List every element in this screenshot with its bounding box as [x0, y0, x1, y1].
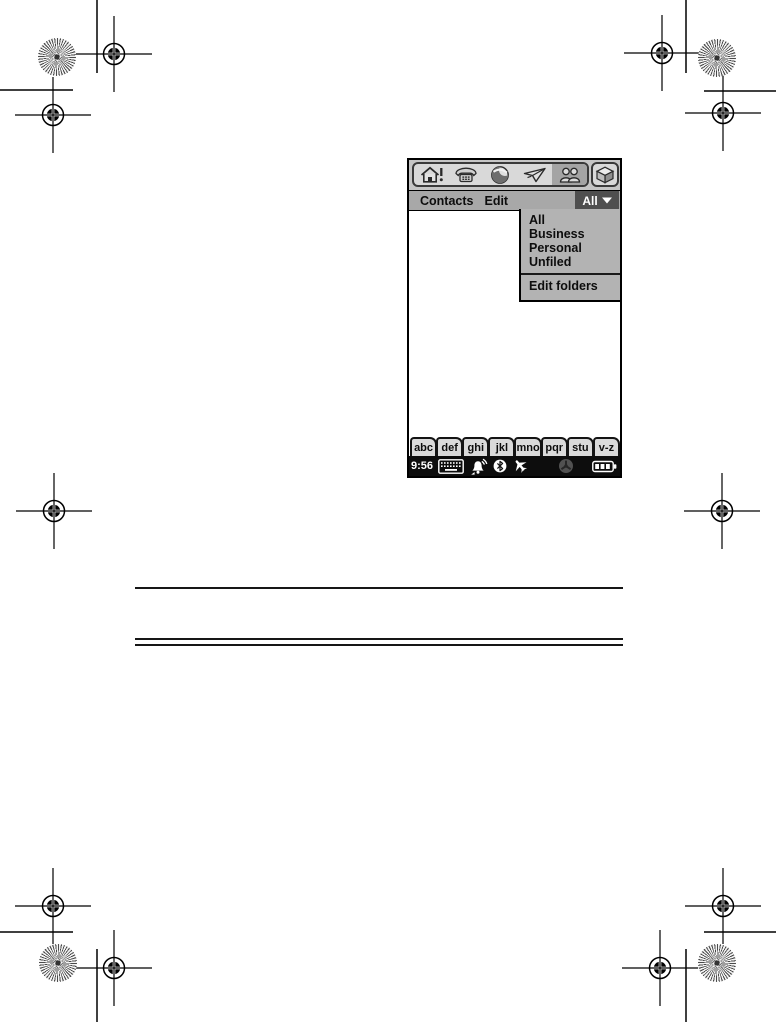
phone-icon: [453, 165, 479, 185]
chevron-down-icon: [602, 197, 612, 204]
phone-button[interactable]: [449, 164, 484, 185]
category-option-business[interactable]: Business: [529, 227, 620, 241]
web-button[interactable]: [483, 164, 518, 185]
note-rule-top: [135, 587, 623, 589]
bluetooth-icon: [493, 459, 507, 473]
home-alert-icon: [418, 165, 444, 185]
edit-folders-option[interactable]: Edit folders: [529, 278, 620, 294]
category-selector-label: All: [582, 194, 597, 208]
send-message-icon: [522, 165, 548, 185]
app-icon-group: [412, 162, 589, 187]
app-icon-bar: [409, 160, 620, 190]
starburst-mark: [698, 944, 736, 982]
menu-contacts[interactable]: Contacts: [420, 194, 473, 208]
tab-pqr[interactable]: pqr: [541, 437, 568, 456]
tab-mno[interactable]: mno: [514, 437, 541, 456]
clock-text: 9:56: [411, 460, 433, 472]
menu-edit[interactable]: Edit: [484, 194, 508, 208]
tab-jkl[interactable]: jkl: [488, 437, 515, 456]
category-dropdown: All Business Personal Unfiled Edit folde…: [519, 209, 620, 302]
keyboard-icon: [438, 459, 464, 474]
applications-button[interactable]: [591, 162, 619, 187]
status-bar: 9:56: [409, 456, 620, 476]
contact-list-area: All Business Personal Unfiled Edit folde…: [409, 211, 620, 435]
contacts-people-icon: [556, 165, 584, 185]
flight-mode-icon: [512, 458, 529, 474]
tab-vz[interactable]: v-z: [593, 437, 620, 456]
starburst-mark: [38, 38, 76, 76]
note-rule-bottom: [135, 638, 623, 646]
globe-icon: [489, 165, 511, 185]
starburst-mark: [39, 944, 77, 982]
tab-stu[interactable]: stu: [567, 437, 594, 456]
tab-def[interactable]: def: [436, 437, 463, 456]
sync-icon: [558, 458, 574, 474]
messaging-button[interactable]: [518, 164, 553, 185]
category-option-all[interactable]: All: [529, 213, 620, 227]
home-button[interactable]: [414, 164, 449, 185]
device-screenshot: Contacts Edit All All Business Personal …: [407, 158, 622, 478]
category-option-personal[interactable]: Personal: [529, 241, 620, 255]
alarm-bell-icon: [469, 458, 488, 475]
contacts-button[interactable]: [552, 164, 587, 185]
tab-abc[interactable]: abc: [410, 437, 437, 456]
battery-icon: [592, 460, 617, 473]
registration-marks: [0, 0, 776, 1022]
alphabet-tab-row: abc def ghi jkl mno pqr stu v-z: [409, 435, 620, 456]
category-option-unfiled[interactable]: Unfiled: [529, 255, 620, 269]
menu-bar: Contacts Edit All: [409, 190, 620, 211]
category-selector[interactable]: All: [575, 191, 619, 210]
dropdown-divider: [521, 273, 620, 275]
applications-cube-icon: [594, 165, 616, 185]
starburst-mark: [698, 39, 736, 77]
tab-ghi[interactable]: ghi: [462, 437, 489, 456]
